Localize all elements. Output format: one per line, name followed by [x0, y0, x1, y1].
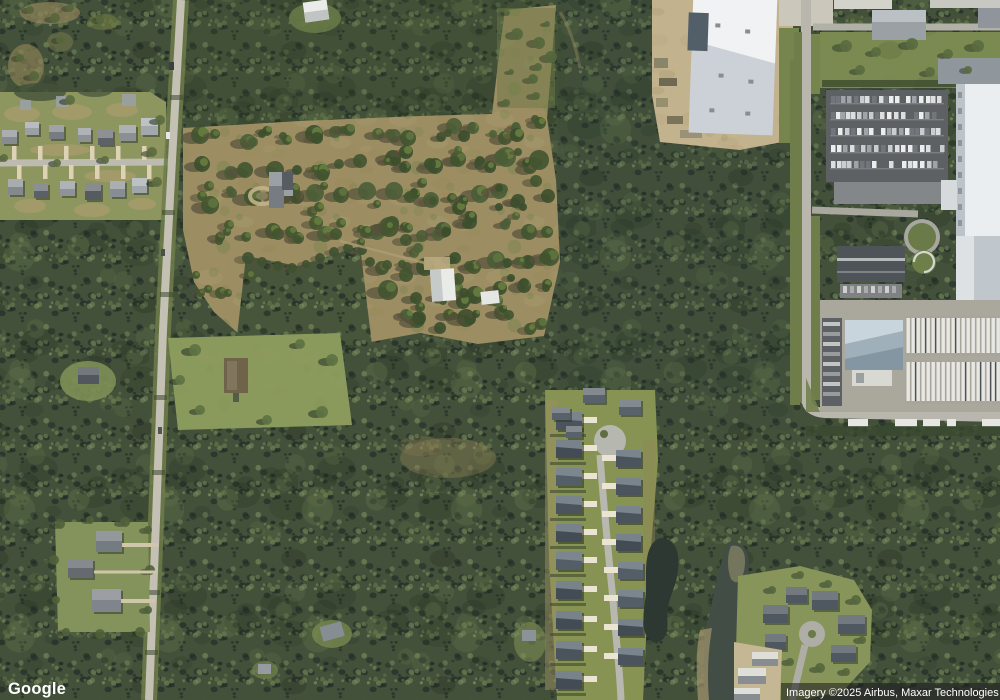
svg-text:Imagery ©2025 Airbus, Maxar Te: Imagery ©2025 Airbus, Maxar Technologies — [786, 687, 999, 699]
svg-text:Google: Google — [8, 680, 66, 698]
